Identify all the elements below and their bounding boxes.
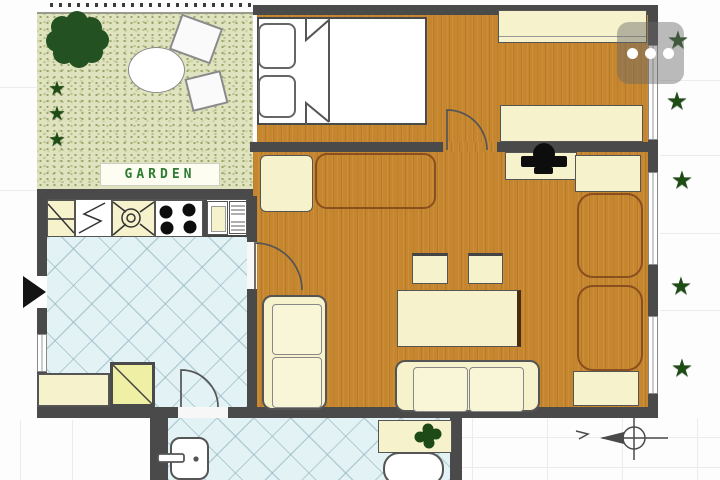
garden-label: GARDEN <box>100 163 220 186</box>
gridline <box>0 190 37 191</box>
stove-unit <box>155 200 203 237</box>
wall-center-upper <box>247 196 257 242</box>
menu-dot-icon <box>627 48 638 59</box>
gridline <box>660 310 720 311</box>
sofa-left <box>262 295 327 410</box>
wall-bedroom-bottom-left <box>250 142 443 152</box>
gridline <box>460 467 720 468</box>
gridline <box>472 418 473 480</box>
star-icon: ★ <box>48 79 66 99</box>
door-opening-bathroom <box>178 407 228 418</box>
sofa-cushion <box>413 367 468 412</box>
star-icon: ★ <box>671 169 693 194</box>
pillow <box>258 75 296 118</box>
wall-bedroom-bottom-right <box>497 142 658 152</box>
garden-table <box>128 47 185 93</box>
gridline <box>697 418 698 480</box>
daybed-mat <box>577 285 643 371</box>
star-icon: ★ <box>671 357 693 382</box>
gridline <box>0 87 37 88</box>
sofa-cushion <box>272 357 322 408</box>
menu-dot-icon <box>663 48 674 59</box>
star-icon: ★ <box>666 90 688 115</box>
door-opening-living <box>247 242 257 289</box>
dining-bench <box>260 155 313 212</box>
gridline <box>460 437 720 438</box>
menu-dot-icon <box>645 48 656 59</box>
shower <box>110 362 155 407</box>
gridline <box>660 233 720 234</box>
prep-unit <box>75 199 112 237</box>
floor-plan-image: GARDEN <box>0 0 720 480</box>
pillow <box>258 23 296 69</box>
more-options-button[interactable] <box>617 22 684 84</box>
gridline <box>547 418 548 480</box>
wall-center-lower <box>247 289 257 418</box>
tv-shelf <box>505 152 577 180</box>
stool <box>468 253 503 284</box>
wall-bottom-left-a <box>37 407 178 418</box>
window <box>648 172 658 265</box>
garden-label-text: GARDEN <box>125 167 196 182</box>
sofa-cushion <box>272 304 322 355</box>
sofa-cushion <box>469 367 524 412</box>
toilet <box>383 452 444 480</box>
star-icon: ★ <box>670 275 692 300</box>
sink-unit <box>112 200 155 237</box>
entrance-arrow-icon <box>23 276 46 308</box>
star-icon: ★ <box>48 104 66 124</box>
dishwasher-unit <box>47 200 75 237</box>
gridline <box>72 420 73 480</box>
sideboard-cabinet <box>500 105 643 142</box>
gridline <box>20 420 21 480</box>
stool <box>412 253 448 284</box>
gridline <box>622 418 623 480</box>
star-icon: ★ <box>48 130 66 150</box>
wall-left-upper <box>37 196 47 276</box>
sofa-bottom <box>395 360 540 412</box>
wall-bathroom-left <box>150 418 168 480</box>
washbasin <box>170 437 209 480</box>
daybed-mat <box>577 193 643 278</box>
window <box>37 334 47 372</box>
daybed-seat <box>573 371 639 406</box>
coffee-table <box>397 290 521 347</box>
radiator-unit <box>229 201 247 234</box>
dining-table <box>315 153 436 209</box>
gridline <box>660 155 720 156</box>
fridge-unit <box>207 201 228 235</box>
door-opening-bedroom <box>443 142 497 152</box>
plant-shelf <box>378 420 452 453</box>
fridge-inner <box>211 206 226 232</box>
bottom-left-cabinet <box>37 373 110 407</box>
garden-fence <box>50 3 255 7</box>
daybed-seat <box>575 155 641 192</box>
window <box>648 316 658 394</box>
